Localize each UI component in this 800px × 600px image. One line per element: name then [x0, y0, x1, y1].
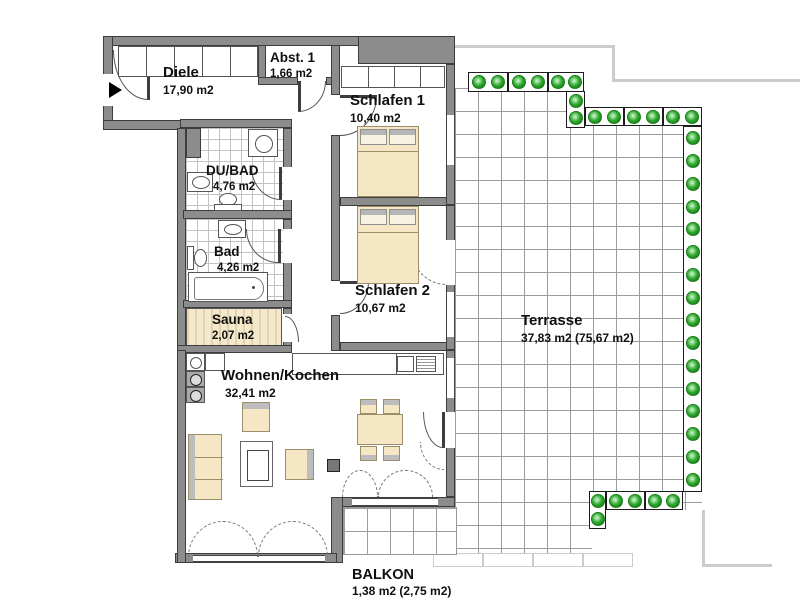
plant-icon: [666, 110, 680, 124]
plant-icon: [666, 494, 680, 508]
window: [446, 292, 455, 337]
context-outline-box: [433, 553, 483, 567]
plant-icon: [686, 177, 700, 191]
plant-icon: [686, 427, 700, 441]
room-label-diele: Diele 17,90 m2: [163, 64, 214, 98]
french-window-swing: [342, 470, 378, 497]
plant-icon: [588, 110, 602, 124]
planter-box: [645, 491, 683, 510]
plant-icon: [531, 75, 545, 89]
wall: [177, 128, 186, 353]
abst1-door-swing: [298, 81, 326, 112]
plant-icon: [551, 75, 565, 89]
plant-icon: [686, 131, 700, 145]
plant-icon: [472, 75, 486, 89]
bathtub: [188, 272, 268, 302]
plant-icon: [648, 494, 662, 508]
planter-box: [606, 491, 645, 510]
plant-icon: [686, 404, 700, 418]
plant-icon: [609, 494, 623, 508]
dining-chair: [383, 399, 400, 414]
context-outline: [612, 45, 615, 82]
dining-chair: [360, 399, 377, 414]
toilet-tank: [214, 204, 242, 211]
plant-icon: [607, 110, 621, 124]
balcony-door-swing: [420, 442, 444, 470]
wall: [340, 197, 455, 206]
plant-icon: [686, 245, 700, 259]
wall: [331, 135, 340, 281]
wall: [180, 119, 292, 128]
room-label-schlafen2: Schlafen 2 10,67 m2: [355, 282, 430, 316]
plant-icon: [569, 94, 583, 108]
armchair: [285, 449, 314, 480]
plant-icon: [591, 512, 605, 526]
stove: [186, 371, 205, 387]
french-window-swing: [378, 470, 433, 497]
toilet-tank: [187, 246, 194, 270]
context-outline: [455, 45, 615, 48]
dubad-door-gap: [283, 167, 292, 200]
wall: [177, 345, 292, 353]
wall: [103, 36, 113, 76]
window: [446, 358, 455, 398]
plant-icon: [685, 110, 699, 124]
planter-box: [683, 126, 702, 492]
planter-box: [624, 107, 663, 126]
kitchen-appliance: [186, 353, 205, 371]
planter-box: [508, 72, 548, 92]
plant-icon: [628, 494, 642, 508]
plant-icon: [569, 111, 583, 125]
plant-icon: [686, 222, 700, 236]
sauna-door-swing: [285, 316, 299, 342]
wall: [340, 342, 455, 351]
shower-wall-stub: [186, 128, 201, 158]
room-label-dubad: DU/BAD 4,76 m2: [206, 163, 259, 194]
wardrobe: [341, 66, 445, 88]
side-table: [327, 459, 340, 472]
context-outline: [702, 510, 705, 567]
room-label-abst1: Abst. 1 1,66 m2: [270, 50, 315, 81]
room-label-schlafen1: Schlafen 1 10,40 m2: [350, 92, 425, 126]
window: [352, 498, 438, 506]
context-outline: [612, 79, 800, 82]
wall: [331, 315, 340, 351]
sofa: [188, 434, 222, 500]
room-label-balkon: BALKON 1,38 m2 (2,75 m2): [352, 566, 451, 599]
planter-box: [589, 491, 606, 529]
planter-box: [663, 107, 702, 126]
coffee-table: [240, 441, 273, 487]
wall: [183, 210, 292, 219]
sink: [218, 220, 246, 238]
wall: [358, 36, 455, 64]
plant-icon: [686, 382, 700, 396]
plant-icon: [686, 313, 700, 327]
living-terrace-door-gap: [446, 412, 455, 448]
plant-icon: [686, 359, 700, 373]
plant-icon: [686, 336, 700, 350]
room-label-wohnen-kochen: Wohnen/Kochen 32,41 m2: [221, 367, 339, 401]
bad-door-leaf: [278, 229, 281, 263]
kitchen-sink-drainer: [416, 356, 436, 372]
context-outline-box: [533, 553, 583, 567]
stove: [186, 387, 205, 403]
schlafen1-door-gap: [331, 95, 340, 135]
plant-icon: [491, 75, 505, 89]
context-outline-box: [583, 553, 633, 567]
window: [446, 115, 455, 165]
context-outline: [702, 564, 772, 567]
plant-icon: [568, 75, 582, 89]
plant-icon: [686, 268, 700, 282]
plant-icon: [686, 154, 700, 168]
plant-icon: [686, 291, 700, 305]
bad-door-gap: [283, 229, 292, 263]
room-label-terrasse: Terrasse 37,83 m2 (75,67 m2): [521, 312, 634, 346]
planter-box: [548, 72, 584, 92]
planter-box: [468, 72, 508, 92]
entrance-arrow-icon: [109, 82, 122, 98]
wall: [177, 350, 186, 563]
floor-plan: Diele 17,90 m2 Abst. 1 1,66 m2 Schlafen …: [0, 0, 800, 600]
kitchen-sink: [397, 356, 414, 372]
schlafen2-terrace-door-gap: [446, 240, 455, 285]
wall: [103, 36, 365, 46]
plant-icon: [686, 200, 700, 214]
plant-icon: [686, 450, 700, 464]
room-label-sauna: Sauna 2,07 m2: [212, 312, 254, 343]
french-window-swing: [188, 521, 258, 557]
dining-chair: [383, 446, 400, 461]
planter-box: [566, 91, 585, 128]
plant-icon: [591, 494, 605, 508]
bed: [357, 206, 419, 284]
dining-chair: [360, 446, 377, 461]
wall: [331, 45, 340, 95]
schlafen2-door-gap: [331, 281, 340, 315]
plant-icon: [512, 75, 526, 89]
dining-table: [357, 414, 403, 445]
toilet: [194, 249, 207, 267]
balcony-floor: [343, 507, 457, 555]
plant-icon: [627, 110, 641, 124]
armchair: [242, 402, 270, 432]
plant-icon: [646, 110, 660, 124]
planter-box: [585, 107, 624, 126]
bed: [357, 126, 419, 197]
plant-icon: [686, 473, 700, 487]
context-outline-box: [483, 553, 533, 567]
washing-machine: [248, 129, 278, 157]
french-window-swing: [258, 521, 328, 557]
room-label-bad: Bad 4,26 m2: [214, 244, 259, 275]
